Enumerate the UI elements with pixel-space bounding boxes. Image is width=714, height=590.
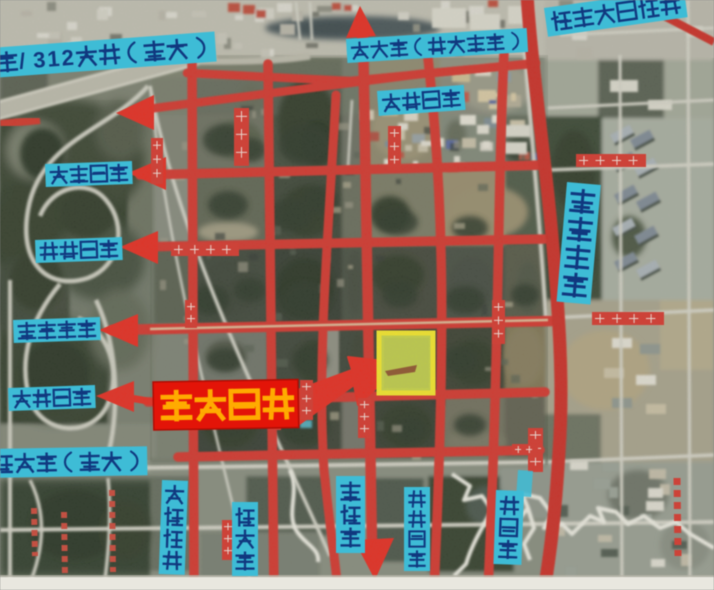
svg-text:1: 1	[46, 46, 60, 72]
svg-text:3: 3	[32, 47, 46, 73]
svg-text:2: 2	[61, 45, 75, 71]
